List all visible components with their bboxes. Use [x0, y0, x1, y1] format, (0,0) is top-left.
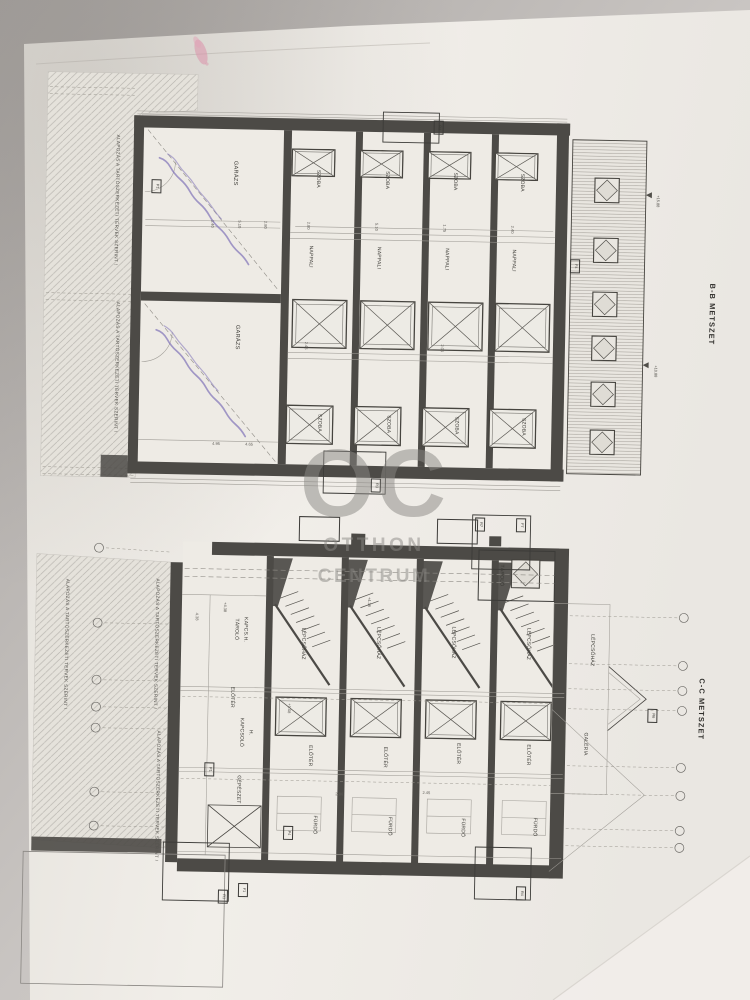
watermark-monogram: OC — [300, 430, 448, 537]
room-label-bedroom: SZOBA — [452, 172, 458, 191]
room-label-gallery: GALÉRIA — [582, 732, 589, 756]
tag-r6-label: R6 — [651, 713, 655, 718]
dimension-label: 1.75 — [442, 224, 447, 233]
room-label-stair: LÉPCSŐHÁZ — [300, 628, 308, 660]
dimension-label: 2.80 — [263, 221, 268, 230]
room-label-switch: KAPCSOLÓ — [238, 718, 246, 747]
roof-strip — [567, 140, 653, 475]
tag-r7-label: R7 — [479, 522, 483, 527]
level-mark: +4.38 — [367, 597, 372, 607]
tag-r1-label: R1 — [222, 894, 226, 899]
dimension-label: 2.40 — [510, 226, 515, 235]
dimension-label: 1.40 — [210, 220, 215, 229]
room-label-living: NAPPALI — [443, 248, 449, 270]
level-mark: +1.08 — [287, 703, 292, 713]
room-label-stair: LÉPCSŐHÁZ — [375, 627, 383, 659]
room-label-bath: FÜRDŐ — [532, 818, 539, 837]
room-label-foyer: ELŐTÉR — [525, 744, 532, 766]
dimension-label: 2.80 — [335, 791, 344, 796]
room-label-storage-switch: TÁROLÓ — [233, 618, 240, 640]
dimension-label: 2.05 — [440, 344, 445, 353]
room-label-stair: LÉPCSŐHÁZ — [450, 626, 458, 658]
dimension-label: 4.38 — [195, 613, 200, 622]
room-label-foyer: ELŐTÉR — [229, 687, 236, 709]
tag-f7-label: F7 — [520, 523, 524, 528]
room-label-bedroom: SZOBA — [520, 418, 526, 437]
room-label-storage-switch: KAPCS.H. — [242, 617, 248, 642]
tag-r2-label: R2 — [438, 125, 442, 130]
room-label-bedroom: SZOBA — [519, 174, 525, 193]
room-label-garage-1: GARÁZS — [232, 161, 239, 186]
room-label-switch: H. — [247, 730, 253, 736]
room-label-bedroom: SZOBA — [315, 170, 321, 189]
dimension-label: 4.95 — [212, 441, 221, 446]
room-label-living: NAPPALI — [375, 247, 381, 269]
level-mark-ridge: +15.88 — [656, 195, 661, 207]
dimension-label: 5.10 — [374, 223, 379, 232]
dimension-label: 2.45 — [422, 790, 431, 795]
section-title-cc: C-C METSZET — [696, 678, 706, 740]
ground-hatch-lower — [31, 554, 171, 849]
room-label-storage: TÁROLÓ — [498, 565, 505, 587]
watermark-word-1: OTTHON — [323, 535, 424, 556]
room-label-garage-2: GARÁZS — [234, 325, 241, 350]
dimension-label: 2.45 — [304, 342, 309, 351]
tag-p1-lower-label: P1 — [208, 767, 212, 772]
room-label-living: NAPPALI — [510, 249, 516, 271]
tag-r4-label: R4 — [520, 891, 524, 896]
room-label-mechanical: GÉPÉSZET — [235, 775, 243, 803]
room-label-foyer: ELŐTÉR — [307, 745, 314, 767]
room-label-foyer: ELŐTÉR — [382, 747, 389, 769]
tag-p4-label: P4 — [287, 831, 291, 836]
room-label-stair: LÉPCSŐHÁZ — [589, 634, 597, 666]
room-label-stair: LÉPCSŐHÁZ — [525, 628, 533, 660]
photo-of-architectural-drawing: P1 R2 F4 R3 GARÁZS GARÁZS SZOBA SZOBA SZ… — [0, 0, 750, 1000]
watermark-word-2: CENTRUM — [318, 566, 431, 587]
room-label-bath: FÜRDŐ — [312, 815, 319, 834]
level-mark: +4.38 — [223, 602, 228, 612]
section-title-bb: B-B METSZET — [707, 283, 717, 345]
room-label-foyer: ELŐTÉR — [455, 743, 462, 765]
room-label-living: NAPPALI — [307, 246, 313, 268]
tag-p1-upper-label: P1 — [155, 184, 159, 189]
room-label-bath: FÜRDŐ — [387, 817, 394, 836]
room-label-bedroom: SZOBA — [384, 171, 390, 190]
dimension-label: 5.10 — [237, 220, 242, 229]
room-label-bath: FÜRDŐ — [460, 818, 467, 837]
dimension-label: 2.80 — [306, 222, 311, 231]
room-label-bedroom: SZOBA — [453, 417, 459, 436]
dimension-label: 4.65 — [245, 441, 254, 446]
tag-f4-label: F4 — [574, 264, 578, 269]
level-mark-eave: +10.88 — [653, 365, 658, 377]
tag-f1-label: F1 — [242, 888, 246, 893]
